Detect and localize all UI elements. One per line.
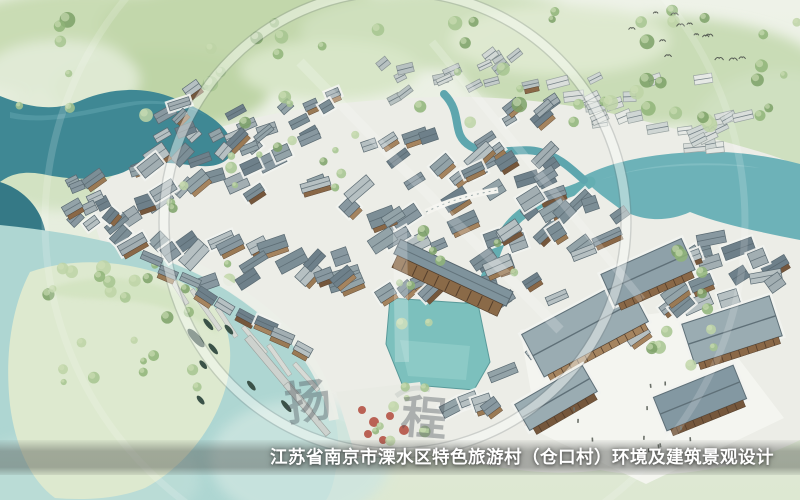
watermark-char: 扬: [282, 373, 335, 431]
rendering-canvas: 扬 程 江苏省南京市溧水区特色旅游村（仓口村）环境及建筑景观设计: [0, 0, 800, 500]
village-illustration: 扬 程: [0, 0, 800, 500]
watermark-char: 程: [399, 390, 449, 446]
caption-bar: 江苏省南京市溧水区特色旅游村（仓口村）环境及建筑景观设计: [0, 440, 800, 475]
caption-text: 江苏省南京市溧水区特色旅游村（仓口村）环境及建筑景观设计: [270, 440, 774, 475]
